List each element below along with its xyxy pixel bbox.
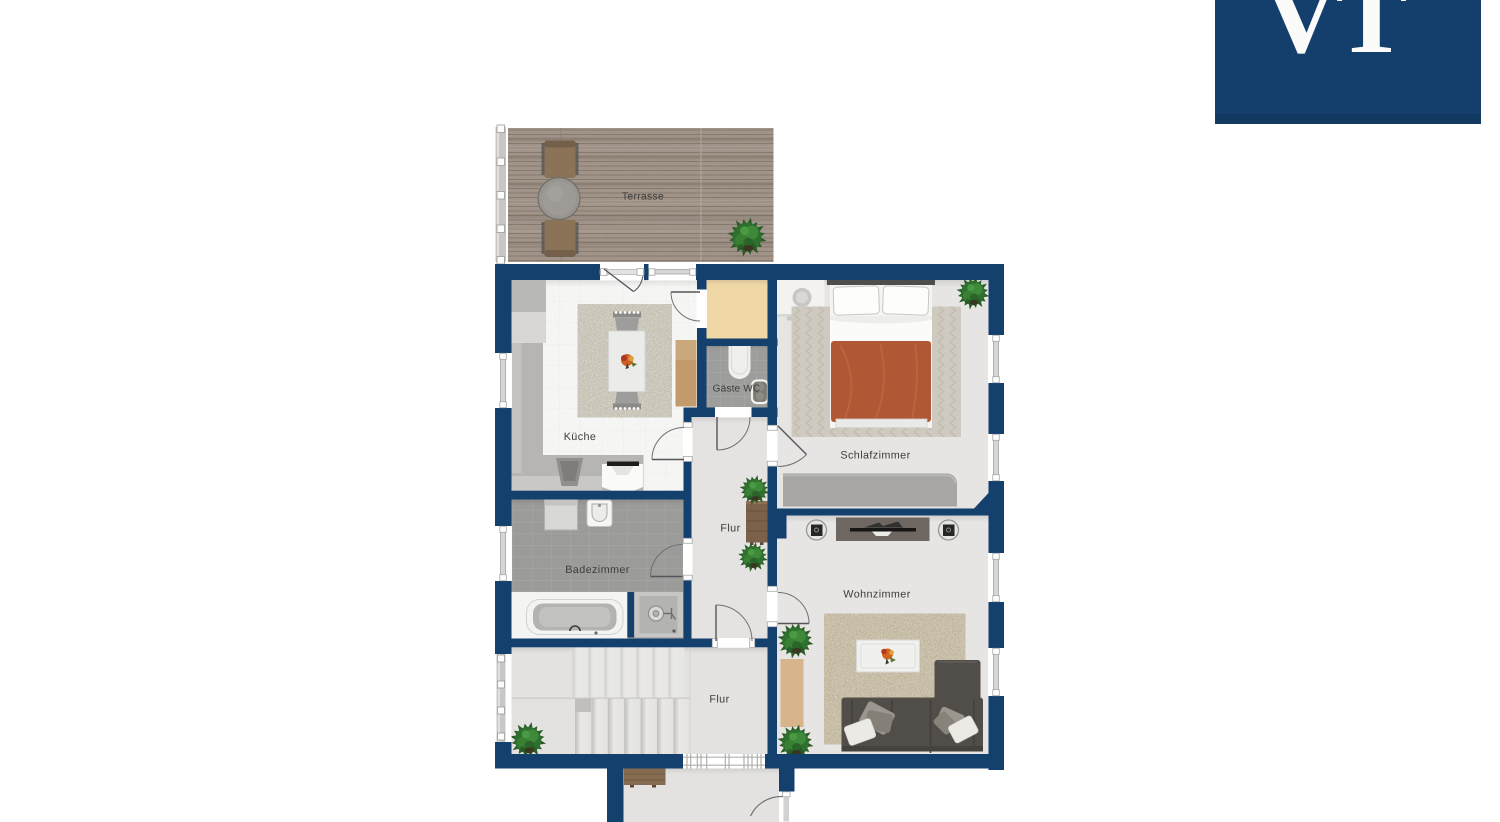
svg-text:Badezimmer: Badezimmer — [565, 564, 630, 576]
svg-text:Küche: Küche — [564, 431, 597, 443]
svg-text:Wohnzimmer: Wohnzimmer — [843, 589, 910, 601]
svg-text:Schlafzimmer: Schlafzimmer — [840, 450, 910, 462]
svg-text:Terrasse: Terrasse — [622, 192, 664, 203]
svg-text:Gäste WC: Gäste WC — [713, 384, 761, 395]
svg-text:Flur: Flur — [709, 694, 729, 706]
svg-text:Flur: Flur — [720, 523, 740, 535]
svg-text:VT: VT — [1262, 0, 1406, 76]
